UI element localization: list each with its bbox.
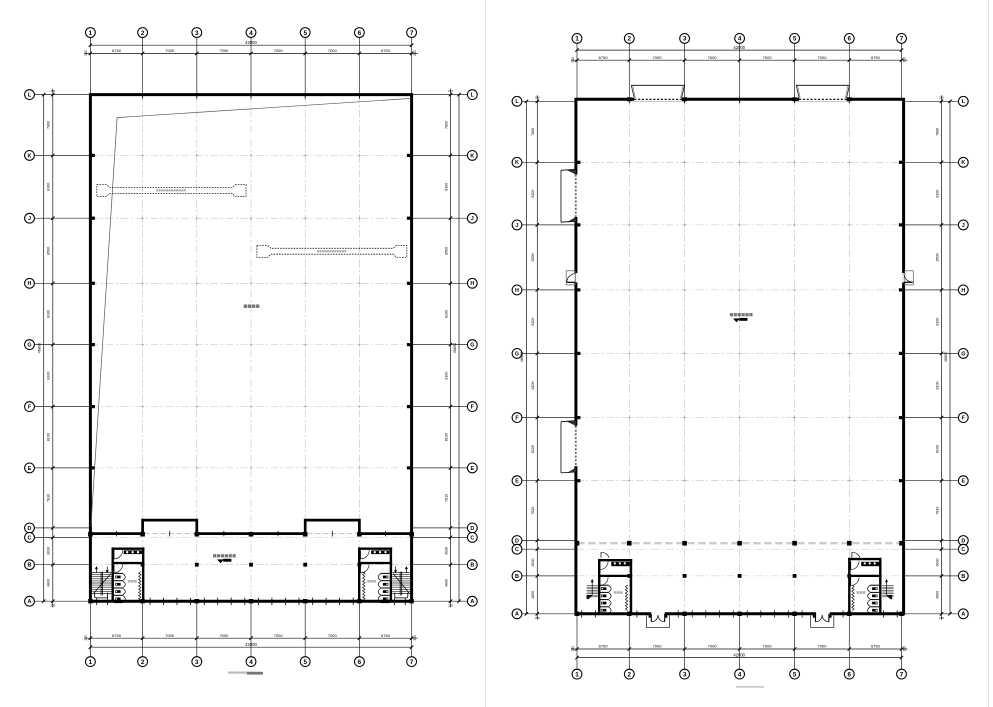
svg-text:7000: 7000 — [818, 644, 828, 649]
svg-text:42000: 42000 — [733, 45, 745, 50]
svg-text:G: G — [470, 343, 474, 349]
svg-text:46800: 46800 — [453, 343, 457, 354]
svg-text:J: J — [962, 223, 965, 229]
svg-text:8100: 8100 — [935, 318, 939, 326]
svg-text:5: 5 — [793, 36, 797, 43]
svg-text:250: 250 — [535, 96, 540, 100]
svg-text:6750: 6750 — [871, 644, 881, 649]
svg-text:8100: 8100 — [531, 318, 535, 326]
svg-text:4: 4 — [249, 30, 253, 37]
svg-text:8100: 8100 — [531, 190, 535, 198]
svg-text:8100: 8100 — [935, 190, 939, 198]
svg-text:G: G — [515, 351, 519, 357]
svg-text:A: A — [515, 612, 519, 618]
svg-text:8500: 8500 — [444, 247, 448, 255]
svg-text:D: D — [470, 526, 474, 532]
svg-text:250: 250 — [939, 96, 944, 100]
svg-text:H: H — [470, 281, 474, 287]
svg-text:46800: 46800 — [944, 352, 948, 363]
svg-text:4: 4 — [249, 659, 253, 666]
svg-text:7000: 7000 — [165, 633, 175, 638]
svg-text:4800: 4800 — [47, 579, 51, 587]
svg-text:E: E — [961, 479, 965, 485]
svg-text:3630: 3630 — [531, 559, 535, 567]
svg-text:6: 6 — [358, 30, 362, 37]
svg-text:7810: 7810 — [935, 507, 939, 515]
svg-text:7000: 7000 — [763, 55, 773, 60]
svg-text:8100: 8100 — [444, 372, 448, 380]
svg-text:7000: 7000 — [274, 633, 284, 638]
svg-text:C: C — [470, 535, 474, 541]
svg-text:250: 250 — [448, 89, 453, 93]
svg-text:7: 7 — [410, 30, 414, 37]
svg-text:8500: 8500 — [47, 247, 51, 255]
svg-text:46800: 46800 — [520, 352, 524, 363]
svg-text:B: B — [515, 574, 519, 580]
svg-text:4: 4 — [738, 671, 742, 678]
svg-text:250: 250 — [84, 50, 88, 56]
svg-text:3: 3 — [683, 36, 687, 43]
svg-text:8100: 8100 — [444, 310, 448, 318]
svg-text:D: D — [515, 538, 519, 544]
svg-text:7: 7 — [410, 659, 414, 666]
svg-text:250: 250 — [413, 635, 417, 641]
svg-text:1: 1 — [89, 659, 93, 666]
svg-text:K: K — [470, 153, 474, 159]
svg-text:G: G — [27, 343, 31, 349]
svg-text:4: 4 — [738, 36, 742, 43]
svg-text:4800: 4800 — [444, 579, 448, 587]
svg-text:J: J — [28, 216, 31, 222]
svg-text:6: 6 — [848, 671, 852, 678]
svg-text:C: C — [28, 535, 32, 541]
svg-text:5: 5 — [303, 30, 307, 37]
svg-text:A: A — [961, 612, 965, 618]
svg-text:6750: 6750 — [381, 48, 391, 53]
svg-text:C: C — [961, 547, 965, 553]
svg-text:7860: 7860 — [444, 121, 448, 129]
svg-text:7810: 7810 — [444, 494, 448, 502]
svg-text:6750: 6750 — [599, 55, 609, 60]
svg-text:7: 7 — [900, 671, 904, 678]
svg-text:5: 5 — [303, 659, 307, 666]
svg-text:7000: 7000 — [328, 48, 338, 53]
svg-text:K: K — [961, 160, 965, 166]
svg-text:8100: 8100 — [531, 382, 535, 390]
svg-text:7000: 7000 — [653, 55, 663, 60]
svg-text:E: E — [515, 479, 519, 485]
svg-text:250: 250 — [50, 603, 55, 607]
svg-text:250: 250 — [571, 646, 575, 652]
svg-text:1: 1 — [575, 671, 579, 678]
svg-text:250: 250 — [939, 616, 944, 620]
svg-text:A: A — [470, 599, 474, 605]
svg-text:46800: 46800 — [38, 343, 42, 354]
svg-text:8100: 8100 — [444, 433, 448, 441]
svg-text:6750: 6750 — [112, 633, 122, 638]
svg-text:7000: 7000 — [328, 633, 338, 638]
svg-text:6: 6 — [848, 36, 852, 43]
svg-text:B: B — [961, 574, 965, 580]
svg-text:7000: 7000 — [274, 48, 284, 53]
svg-text:7000: 7000 — [763, 644, 773, 649]
svg-text:7810: 7810 — [531, 507, 535, 515]
svg-text:2: 2 — [628, 671, 632, 678]
svg-text:250: 250 — [903, 57, 907, 63]
svg-text:250: 250 — [903, 646, 907, 652]
svg-text:6750: 6750 — [871, 55, 881, 60]
svg-text:6750: 6750 — [112, 48, 122, 53]
svg-text:H: H — [28, 281, 32, 287]
svg-text:7000: 7000 — [818, 55, 828, 60]
svg-text:J: J — [471, 216, 474, 222]
svg-text:7000: 7000 — [708, 644, 718, 649]
svg-text:J: J — [516, 223, 519, 229]
svg-text:H: H — [515, 288, 519, 294]
svg-text:D: D — [28, 526, 32, 532]
svg-text:C: C — [515, 547, 519, 553]
svg-text:8500: 8500 — [531, 253, 535, 261]
svg-text:42000: 42000 — [245, 40, 257, 45]
svg-text:3: 3 — [683, 671, 687, 678]
svg-text:E: E — [28, 466, 32, 472]
svg-text:7000: 7000 — [653, 644, 663, 649]
svg-text:K: K — [515, 160, 519, 166]
svg-text:B: B — [470, 563, 474, 569]
svg-text:3: 3 — [195, 30, 199, 37]
svg-text:8100: 8100 — [47, 372, 51, 380]
svg-text:8100: 8100 — [531, 445, 535, 453]
svg-text:6750: 6750 — [381, 633, 391, 638]
svg-text:42000: 42000 — [245, 642, 257, 647]
svg-text:8100: 8100 — [47, 310, 51, 318]
svg-text:K: K — [28, 153, 32, 159]
svg-text:8100: 8100 — [444, 183, 448, 191]
svg-text:7: 7 — [900, 36, 904, 43]
svg-text:D: D — [961, 538, 965, 544]
svg-text:2: 2 — [628, 36, 632, 43]
svg-text:7860: 7860 — [531, 128, 535, 136]
svg-text:8100: 8100 — [935, 382, 939, 390]
svg-text:A: A — [28, 599, 32, 605]
svg-text:7000: 7000 — [219, 633, 229, 638]
svg-text:6750: 6750 — [599, 644, 609, 649]
svg-text:1: 1 — [575, 36, 579, 43]
svg-text:7860: 7860 — [47, 121, 51, 129]
svg-text:8100: 8100 — [47, 183, 51, 191]
svg-text:5: 5 — [793, 671, 797, 678]
svg-text:42000: 42000 — [733, 652, 745, 657]
svg-text:H: H — [961, 288, 965, 294]
svg-text:250: 250 — [50, 89, 55, 93]
svg-text:1: 1 — [89, 30, 93, 37]
svg-text:2: 2 — [141, 30, 145, 37]
svg-text:250: 250 — [571, 57, 575, 63]
svg-text:250: 250 — [413, 50, 417, 56]
svg-text:3: 3 — [195, 659, 199, 666]
svg-text:6: 6 — [358, 659, 362, 666]
svg-text:4800: 4800 — [935, 591, 939, 599]
svg-text:7000: 7000 — [219, 48, 229, 53]
svg-text:8100: 8100 — [47, 433, 51, 441]
svg-text:7000: 7000 — [708, 55, 718, 60]
svg-text:E: E — [470, 466, 474, 472]
svg-text:4800: 4800 — [531, 591, 535, 599]
svg-text:B: B — [28, 563, 32, 569]
svg-text:G: G — [961, 351, 965, 357]
svg-text:7000: 7000 — [165, 48, 175, 53]
svg-text:8100: 8100 — [935, 445, 939, 453]
svg-text:250: 250 — [84, 635, 88, 641]
svg-text:250: 250 — [448, 603, 453, 607]
svg-text:3630: 3630 — [935, 559, 939, 567]
svg-text:2: 2 — [141, 659, 145, 666]
svg-text:7860: 7860 — [935, 128, 939, 136]
svg-text:8500: 8500 — [935, 253, 939, 261]
svg-text:250: 250 — [535, 616, 540, 620]
svg-text:3630: 3630 — [444, 547, 448, 555]
svg-text:3630: 3630 — [47, 547, 51, 555]
svg-text:7810: 7810 — [47, 494, 51, 502]
